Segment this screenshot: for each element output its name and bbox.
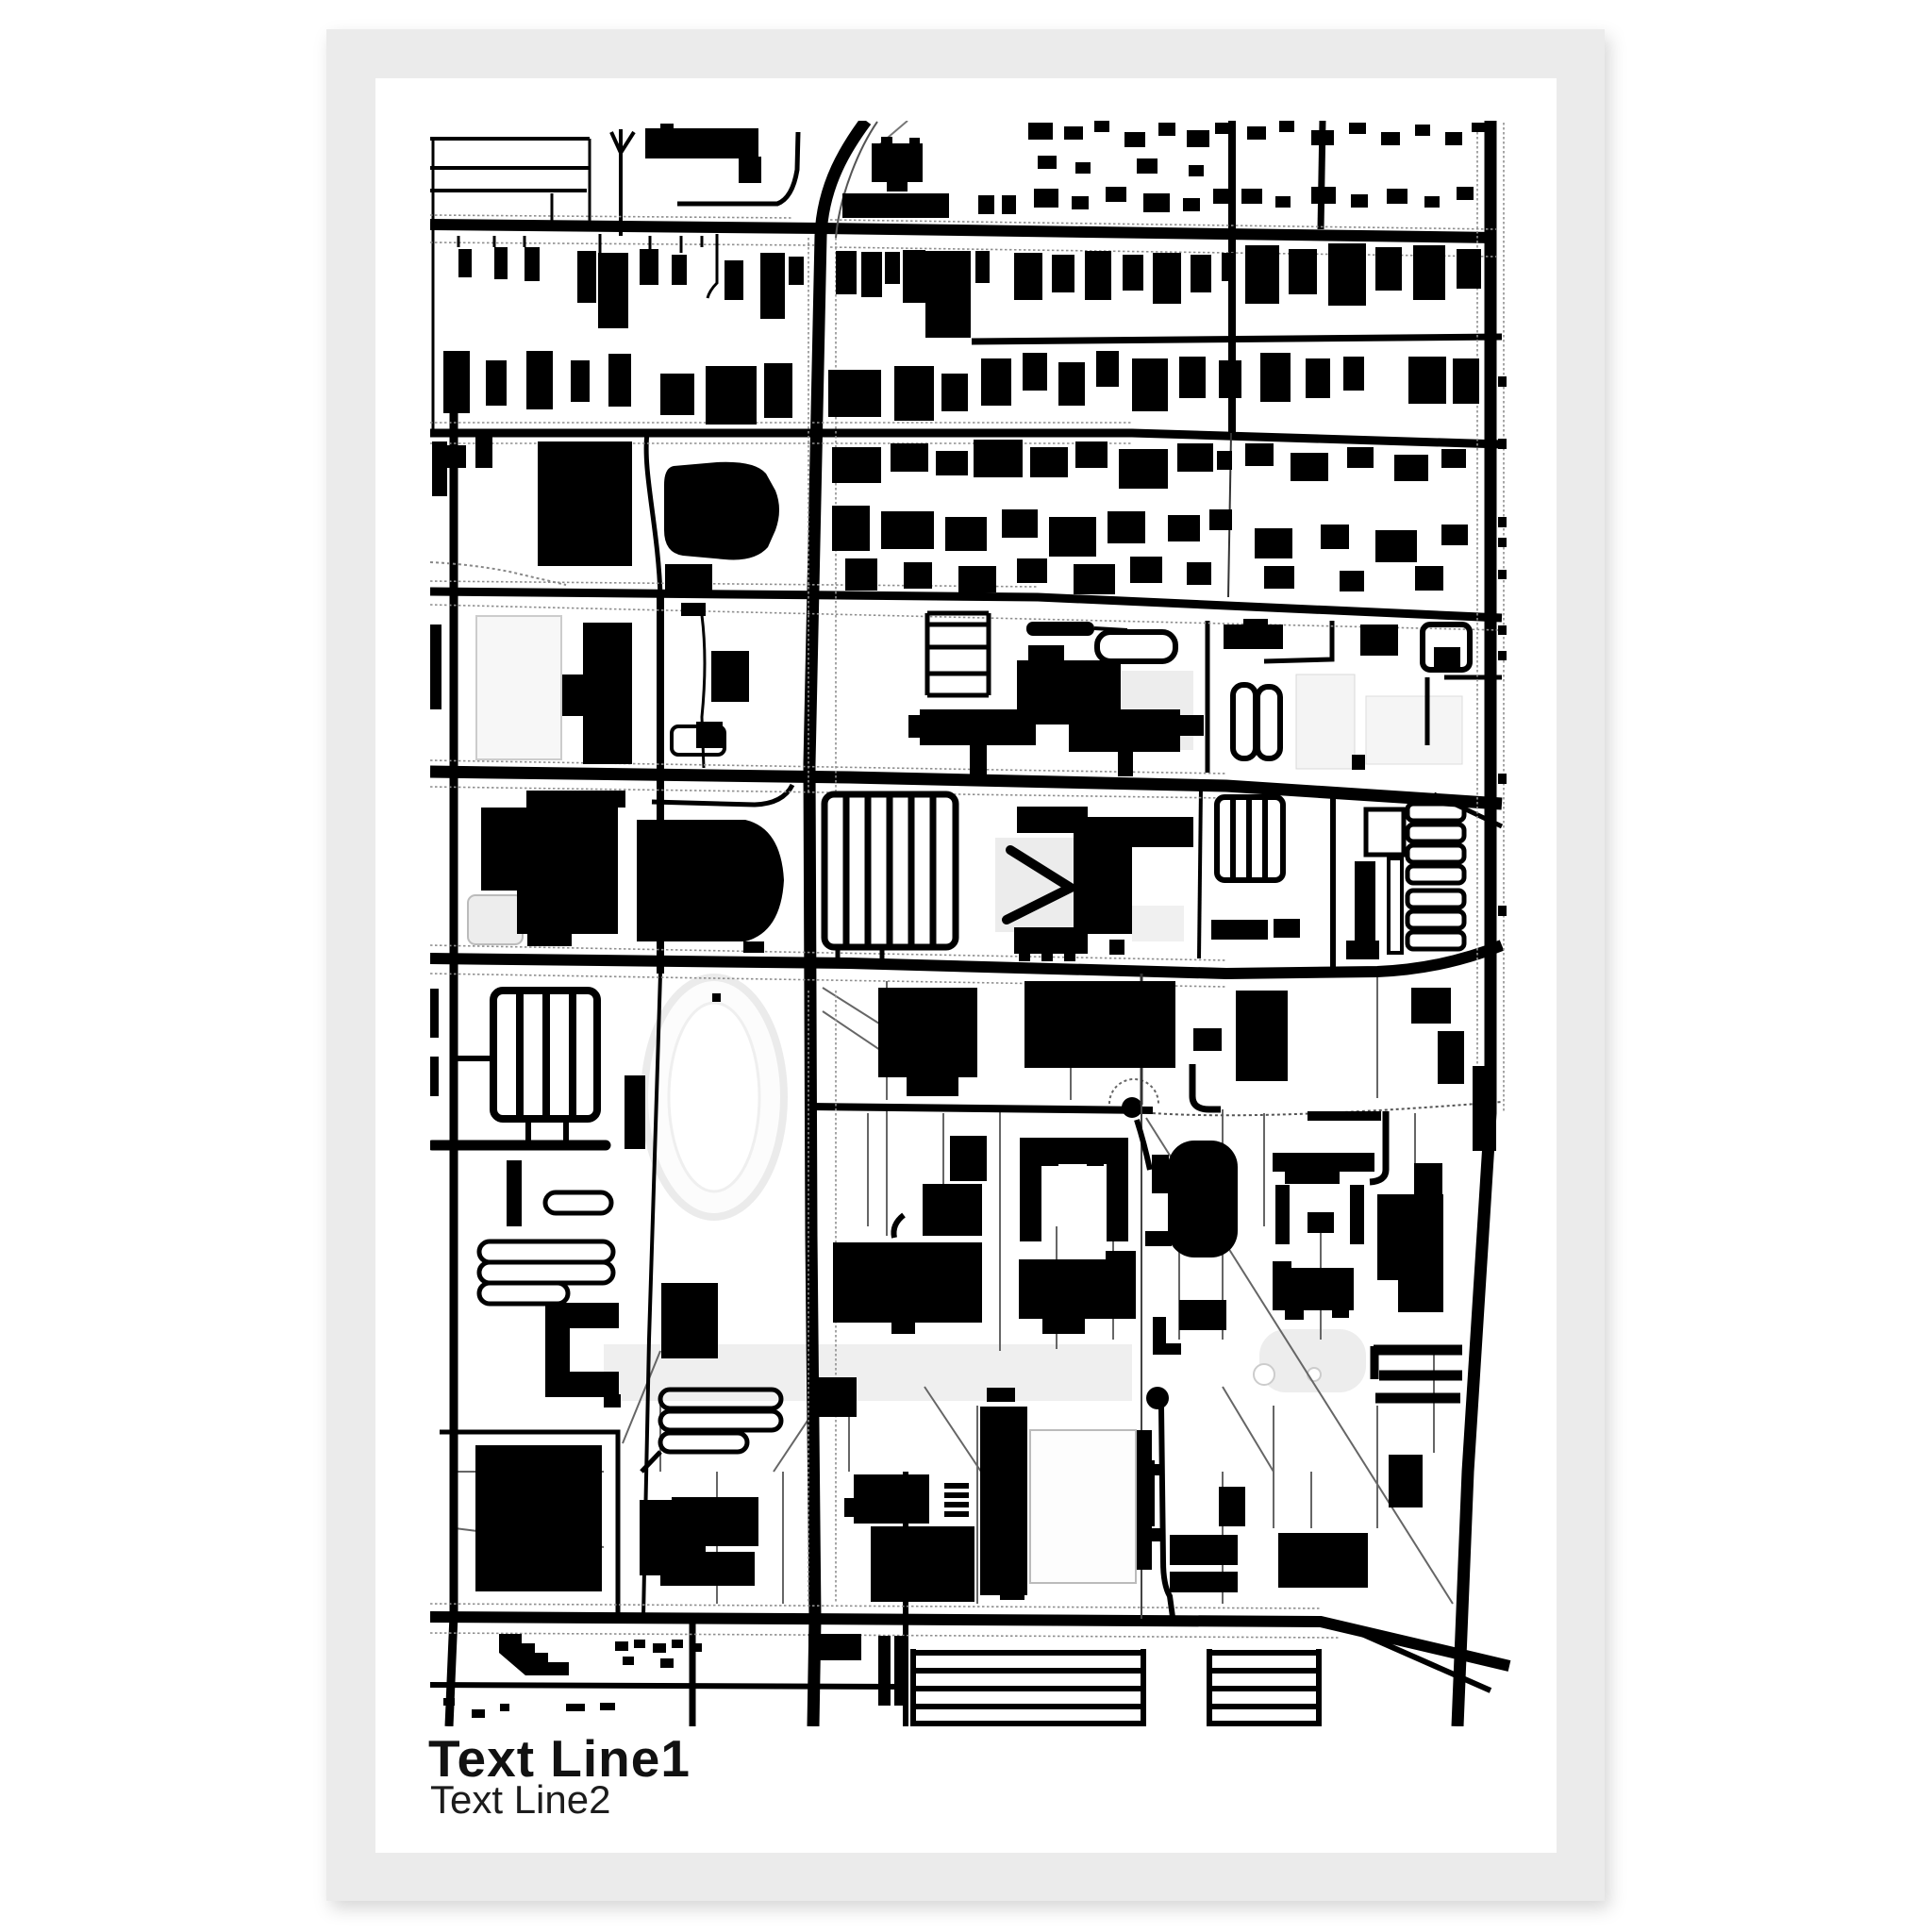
- svg-text:Text Line2: Text Line2: [430, 1777, 610, 1822]
